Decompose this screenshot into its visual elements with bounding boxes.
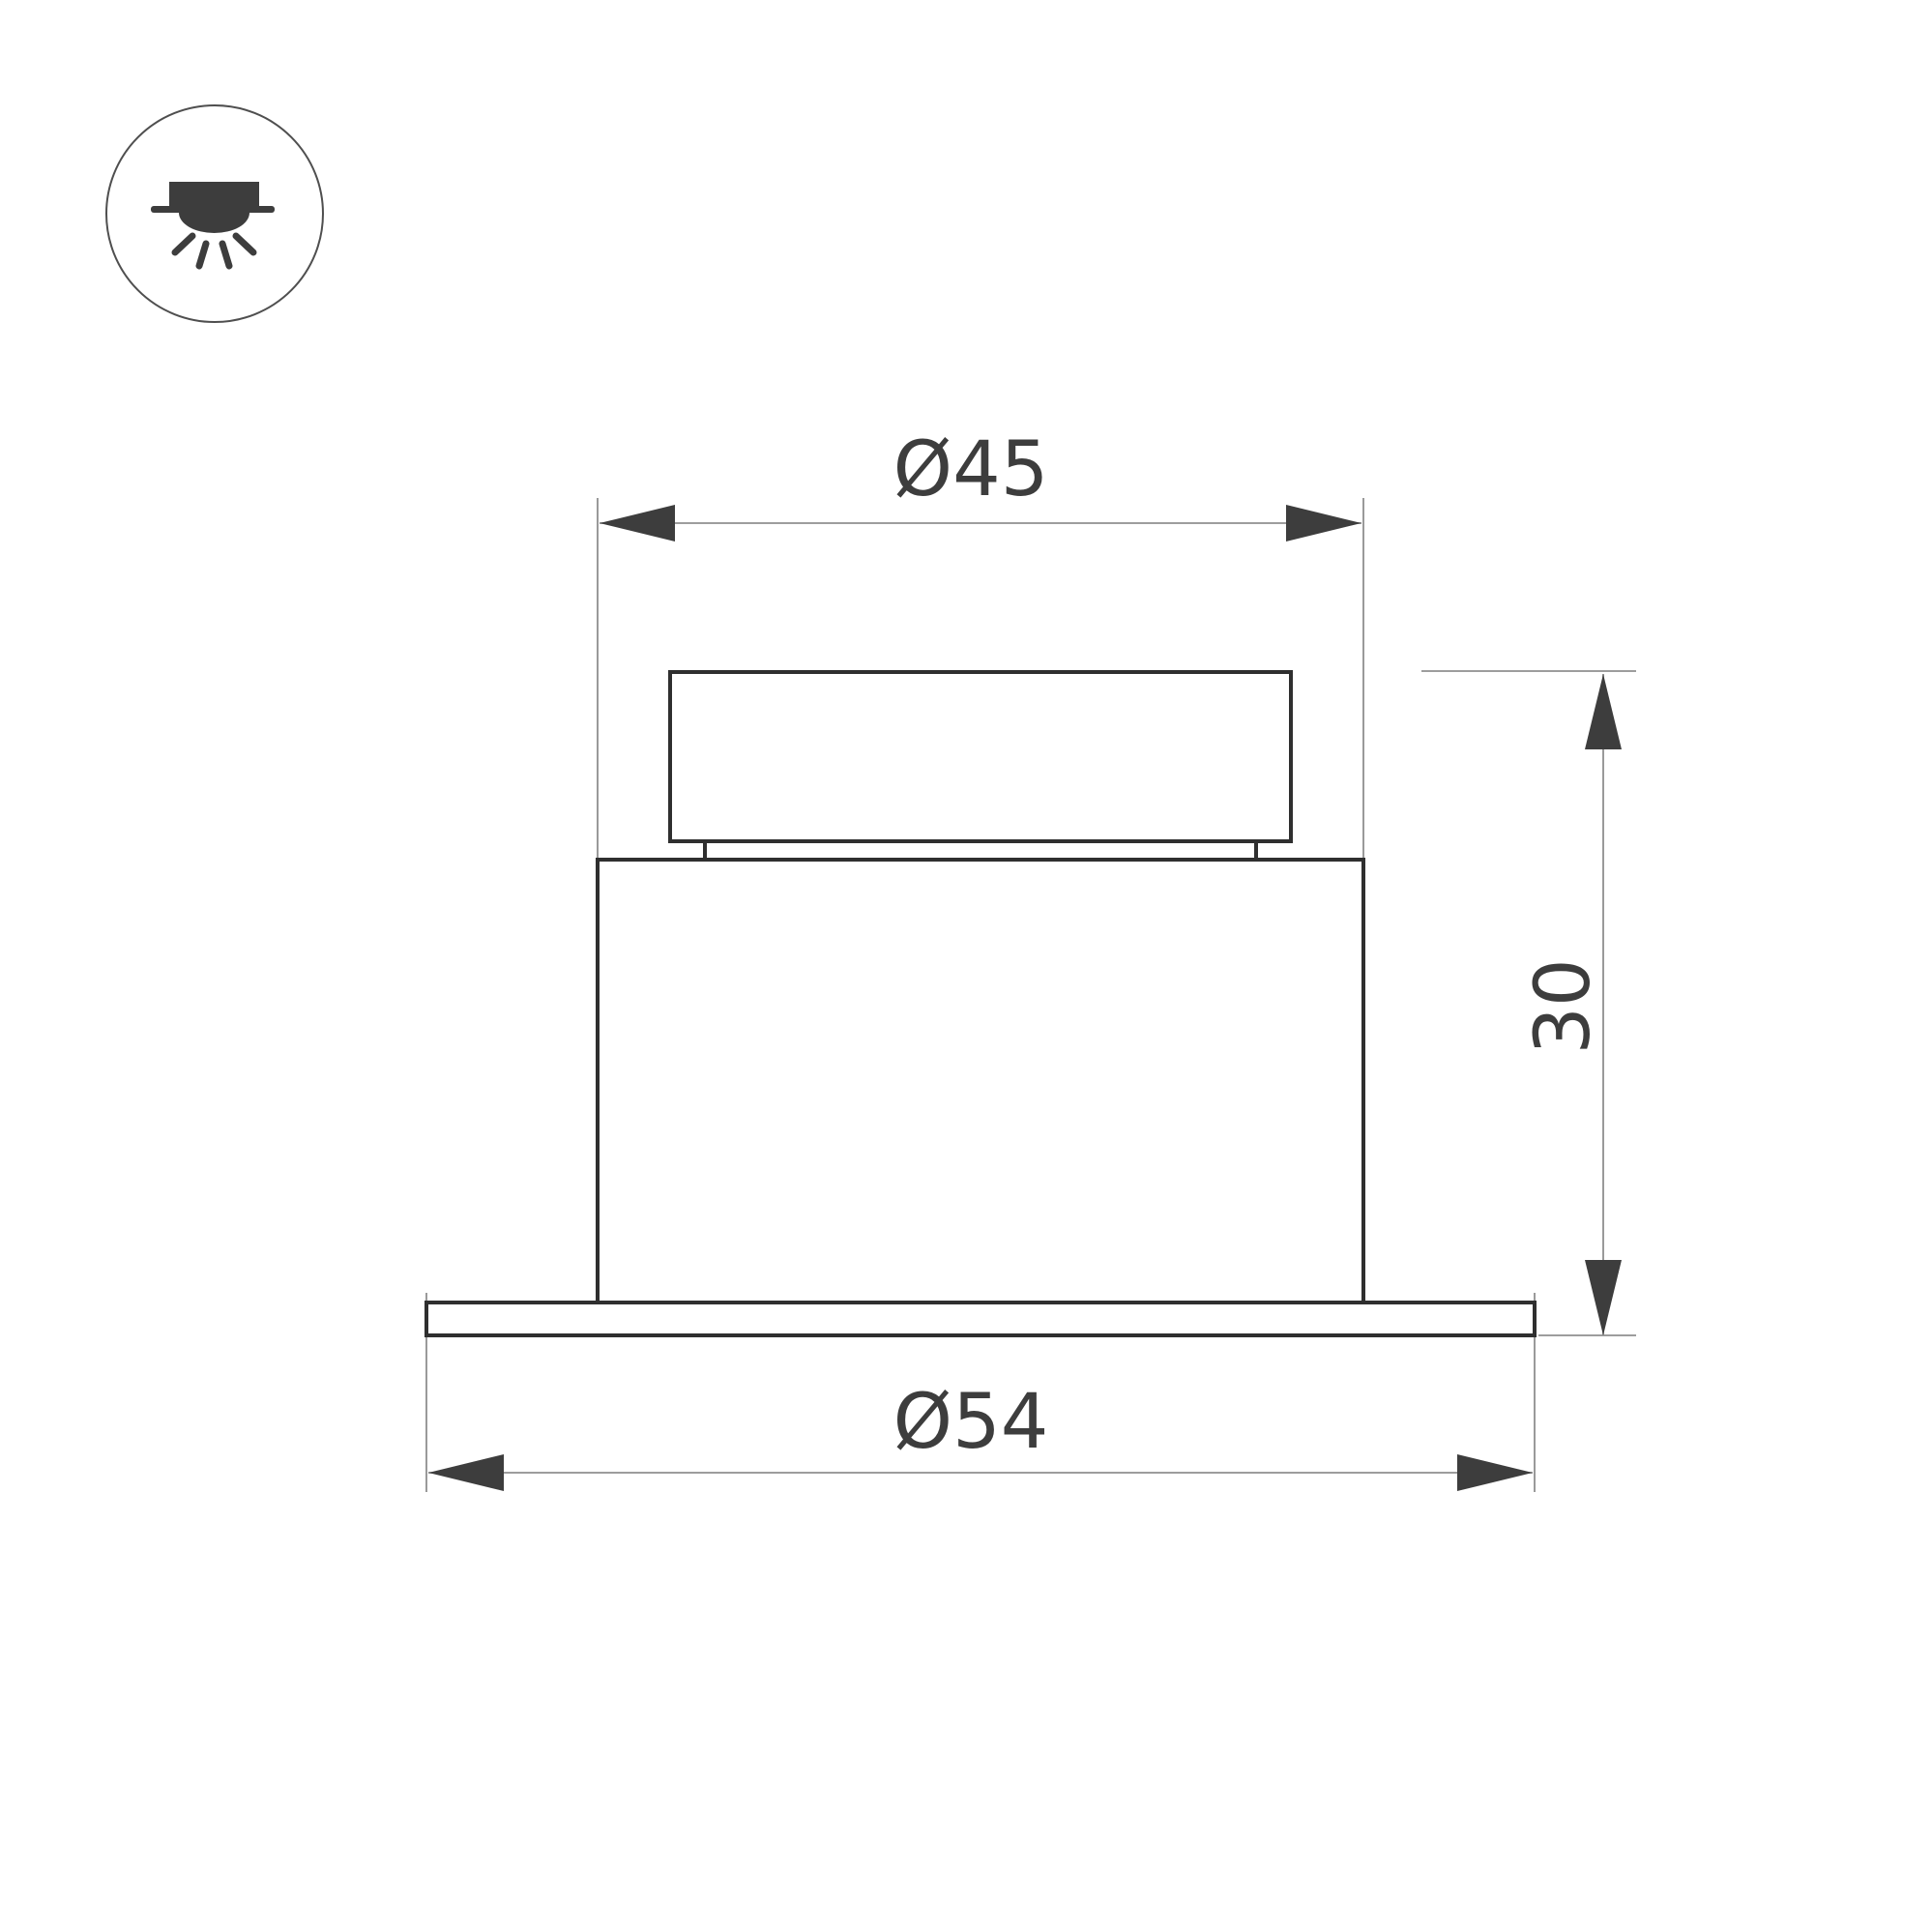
- arrowhead-right-icon: [1457, 1454, 1533, 1491]
- recessed-downlight-icon: [106, 105, 323, 322]
- dim-label-height: 30: [1520, 958, 1607, 1054]
- icon-lamp-housing: [169, 182, 259, 209]
- arrowhead-left-icon: [428, 1454, 504, 1491]
- arrowhead-right-icon: [1286, 505, 1361, 542]
- flange-outline: [426, 1303, 1535, 1335]
- drawing-canvas: Ø45 Ø54 30: [0, 0, 1932, 1932]
- technical-drawing-svg: Ø45 Ø54 30: [0, 0, 1932, 1932]
- dimension-top-diameter: Ø45: [600, 426, 1361, 542]
- arrowhead-left-icon: [600, 505, 675, 542]
- dim-label-bottom-diameter: Ø54: [893, 1379, 1049, 1466]
- icon-trim-flange: [151, 206, 275, 213]
- lens-bezel-outline: [670, 672, 1291, 841]
- arrowhead-down-icon: [1585, 1260, 1622, 1335]
- dimension-bottom-diameter: Ø54: [428, 1379, 1533, 1491]
- luminaire-front-view: [426, 672, 1535, 1335]
- body-outline: [598, 860, 1363, 1303]
- arrowhead-up-icon: [1585, 674, 1622, 749]
- dim-label-top-diameter: Ø45: [893, 426, 1049, 513]
- dimension-height: 30: [1520, 674, 1622, 1335]
